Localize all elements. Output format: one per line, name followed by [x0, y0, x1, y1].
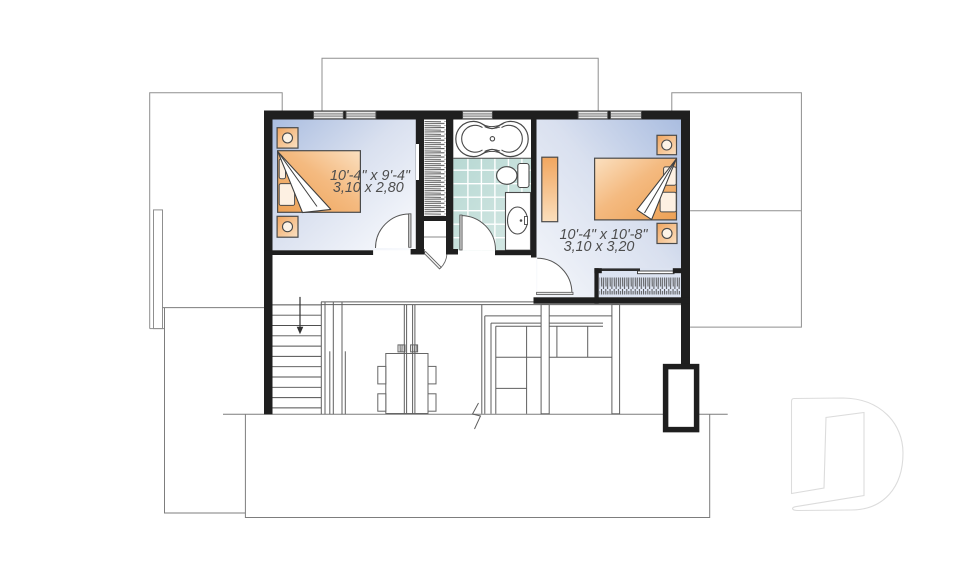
svg-text:3,10 x 3,20: 3,10 x 3,20 — [564, 239, 635, 255]
svg-text:3,10 x 2,80: 3,10 x 2,80 — [333, 180, 404, 196]
